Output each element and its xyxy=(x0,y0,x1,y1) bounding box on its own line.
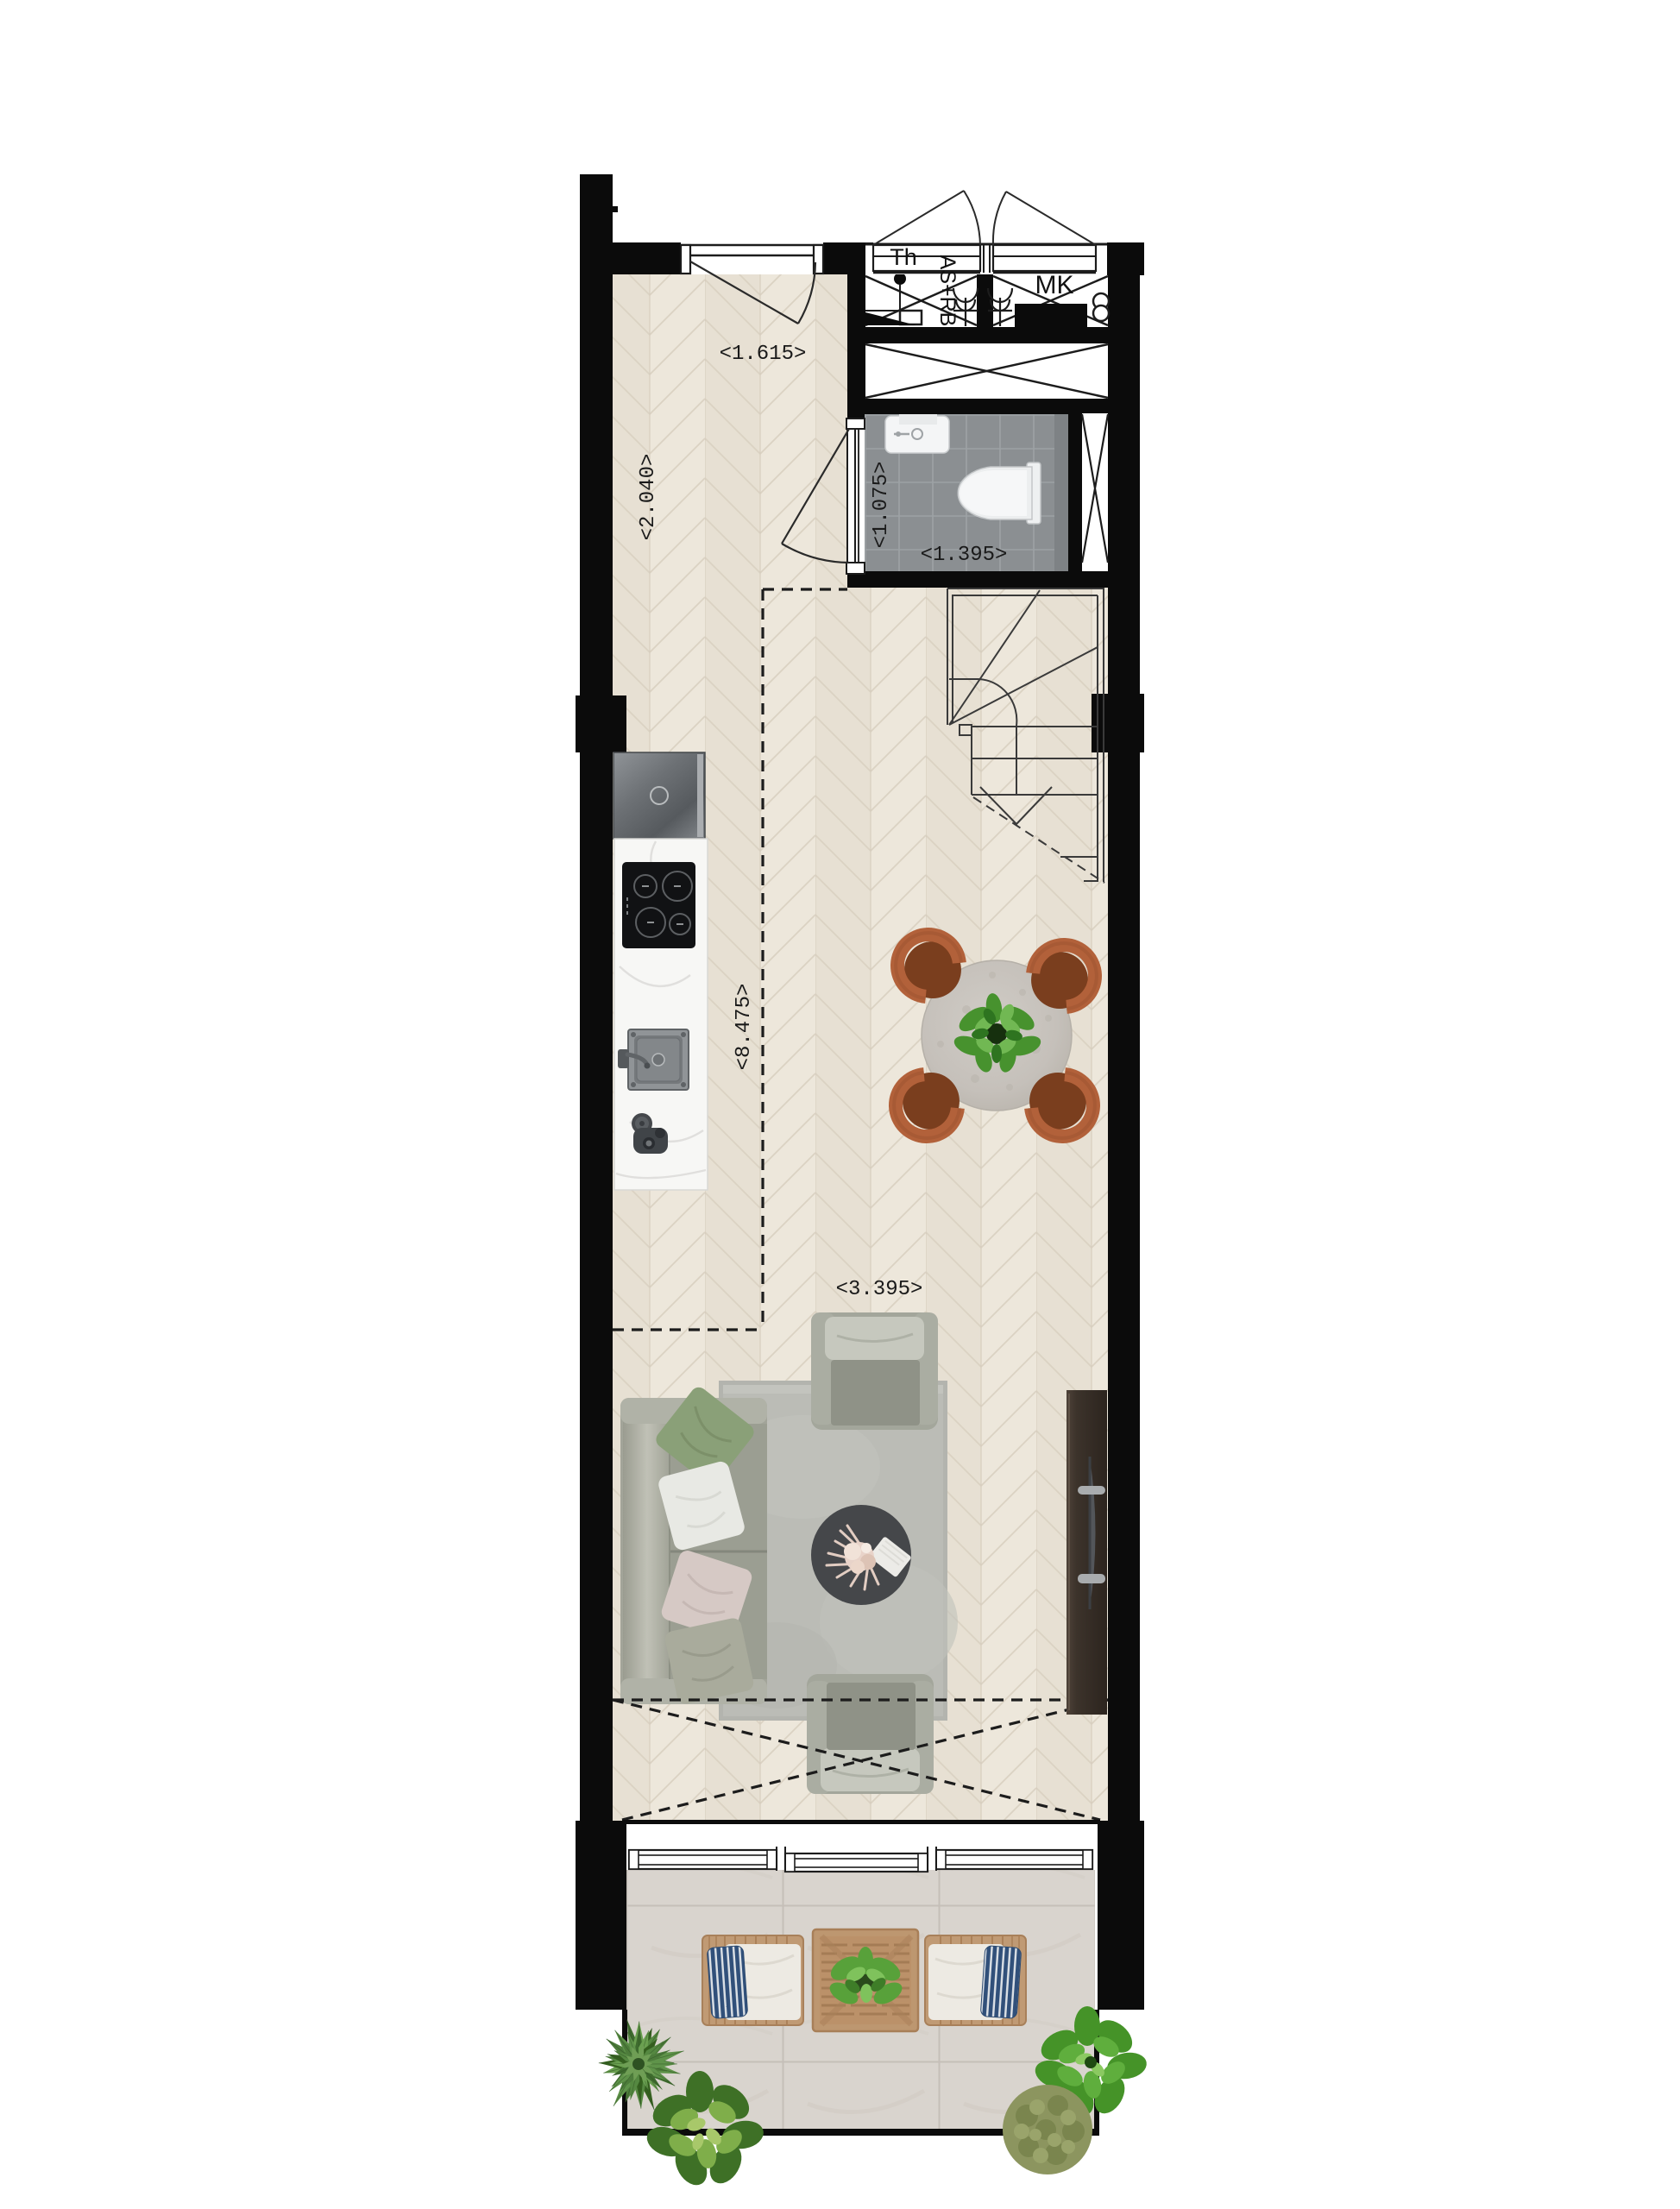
svg-text:<2.040>: <2.040> xyxy=(637,454,660,541)
svg-text:<1.075>: <1.075> xyxy=(870,462,893,549)
svg-text:<8.475>: <8.475> xyxy=(733,984,756,1071)
svg-text:AS+RB: AS+RB xyxy=(935,255,960,327)
svg-text:<1.615>: <1.615> xyxy=(720,343,807,366)
svg-text:<3.395>: <3.395> xyxy=(836,1278,923,1301)
svg-text:<1.395>: <1.395> xyxy=(921,544,1008,567)
svg-text:MK: MK xyxy=(1035,271,1074,299)
svg-text:Th: Th xyxy=(890,244,917,270)
